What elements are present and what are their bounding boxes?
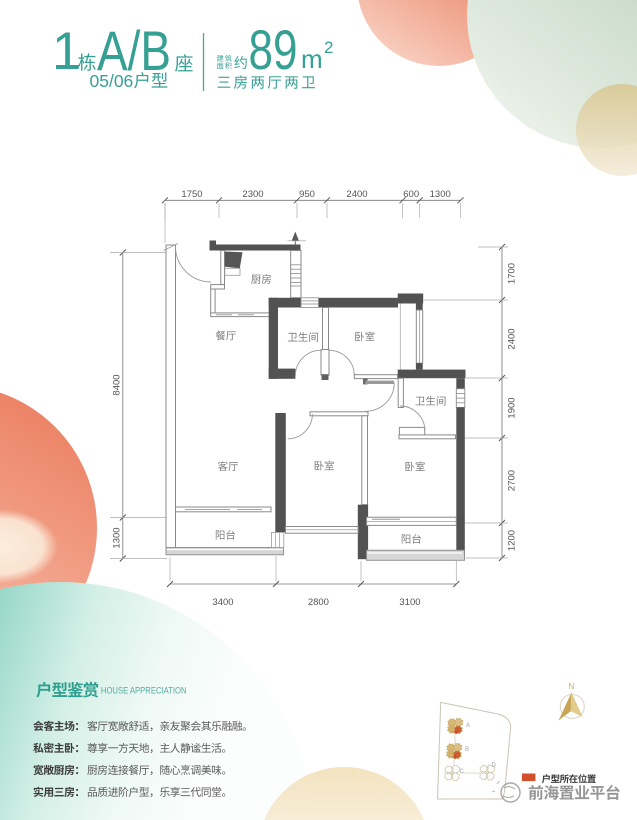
svg-text:1900: 1900 xyxy=(507,397,518,418)
svg-text:1200: 1200 xyxy=(507,530,518,551)
svg-text:3400: 3400 xyxy=(212,597,233,608)
svg-text:1300: 1300 xyxy=(112,527,123,548)
svg-text:600: 600 xyxy=(403,189,419,200)
svg-text:1750: 1750 xyxy=(181,189,202,200)
svg-text:m: m xyxy=(301,44,323,74)
svg-text:2: 2 xyxy=(324,38,333,57)
svg-text:3100: 3100 xyxy=(399,597,420,608)
svg-text:2700: 2700 xyxy=(507,470,518,491)
svg-text:2800: 2800 xyxy=(308,597,329,608)
svg-text:8400: 8400 xyxy=(112,374,123,395)
svg-text:HOUSE APPRECIATION: HOUSE APPRECIATION xyxy=(101,686,187,696)
svg-text:1: 1 xyxy=(52,22,81,81)
svg-text:A: A xyxy=(466,723,470,729)
svg-text:1700: 1700 xyxy=(507,263,518,284)
svg-text:B: B xyxy=(465,747,469,753)
svg-text:05/06: 05/06 xyxy=(90,71,134,91)
svg-text:2300: 2300 xyxy=(242,189,263,200)
svg-text:N: N xyxy=(569,682,575,691)
svg-text:1300: 1300 xyxy=(430,189,451,200)
svg-text:89: 89 xyxy=(249,18,298,81)
svg-text:2400: 2400 xyxy=(507,328,518,349)
svg-text:C: C xyxy=(460,769,465,775)
svg-text:2400: 2400 xyxy=(346,189,367,200)
svg-text:D: D xyxy=(492,763,497,769)
svg-text:950: 950 xyxy=(299,189,315,200)
